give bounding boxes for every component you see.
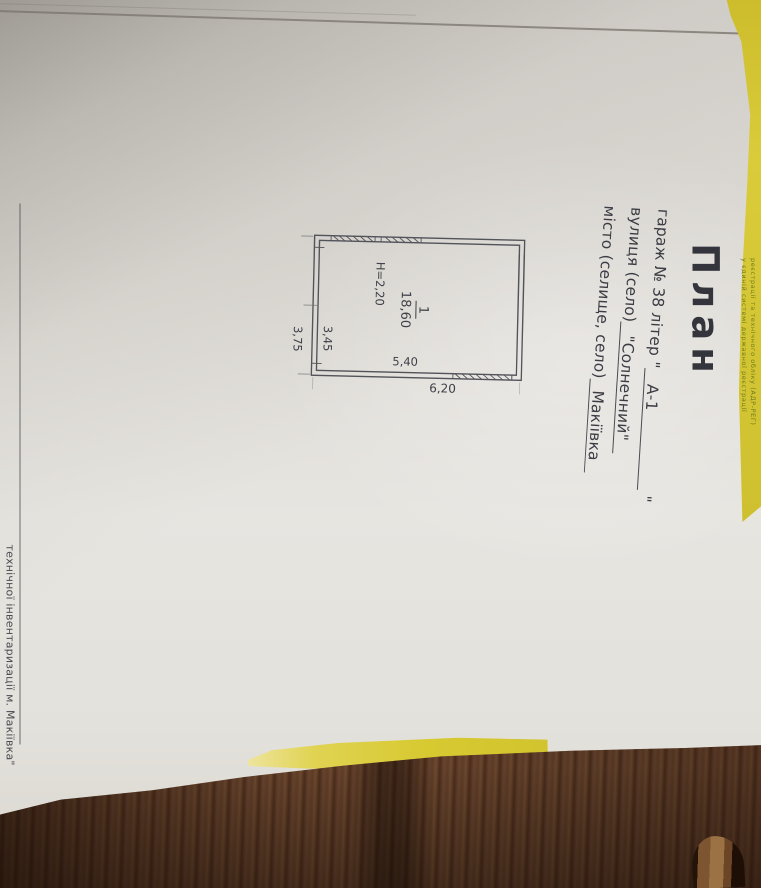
room-area-label: 18,60	[397, 291, 413, 329]
city-blank: Макіївка	[584, 378, 608, 473]
outer-length-label: 6,20	[429, 381, 456, 396]
folder-microtext: реєстрації та технічного обліку (АДР-РЕГ…	[730, 258, 757, 510]
garage-label: гараж № 38 літер "	[644, 208, 672, 369]
folder-microtext-line1: реєстрації та технічного обліку (АДР-РЕГ…	[749, 258, 757, 426]
street-label: вулиця (село)	[620, 207, 645, 323]
footer-text: технічної інвентаризації м. Макіївка"	[4, 545, 17, 766]
form-lines: гараж № 38 літер "А-1 " вулиця (село)"Со…	[656, 210, 673, 479]
folder-microtext-line2: у єдиній системі державної реєстрації	[740, 258, 748, 412]
inner-length-label: 5,40	[392, 354, 418, 369]
garage-number-value: А-1	[642, 384, 662, 412]
footer-rule	[20, 204, 21, 745]
city-label: місто (селище, село)	[590, 205, 619, 379]
street-blank: "Солнечний"	[612, 322, 638, 455]
garage-suffix: "	[636, 495, 654, 503]
inner-width-label: 3,45	[320, 326, 335, 352]
garage-number-blank: А-1	[641, 368, 663, 427]
street-value: "Солнечний"	[613, 335, 638, 442]
floor-plan: 1 18,60 H=2,20 3,45 5,40 6,20 3,75	[267, 202, 544, 413]
room-number-label: 1	[415, 306, 430, 315]
city-value: Макіївка	[585, 390, 607, 461]
outer-width-label: 3,75	[290, 326, 305, 352]
document-page: План гараж № 38 літер "А-1 " вулиця (сел…	[0, 8, 745, 758]
photo-of-document: План гараж № 38 літер "А-1 " вулиця (сел…	[0, 0, 761, 888]
garage-blank-tail	[637, 426, 659, 491]
page-title: План	[681, 236, 727, 388]
height-label: H=2,20	[373, 262, 388, 306]
